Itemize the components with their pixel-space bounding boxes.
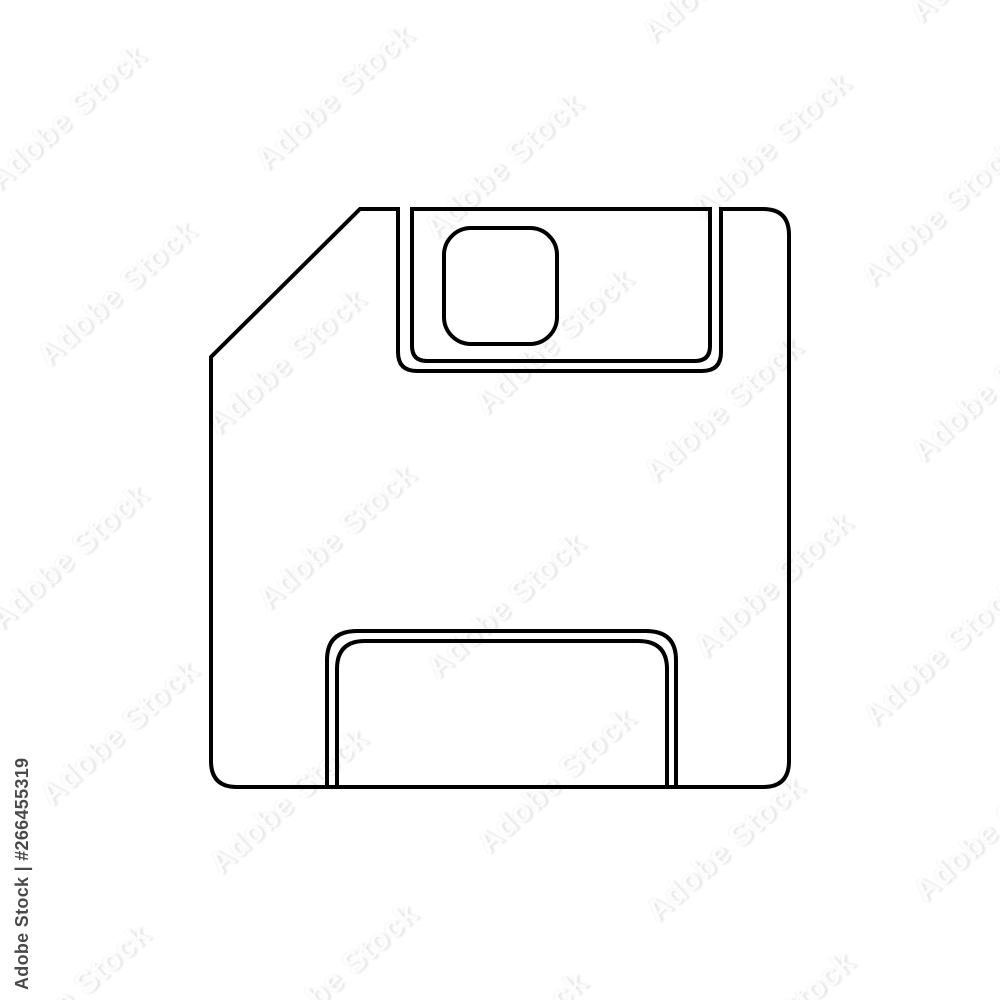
watermark-credit-text: Adobe Stock | #266455319 [12, 758, 32, 990]
watermark-credit: Adobe Stock | #266455319 [12, 758, 33, 990]
disk-body-outline [211, 209, 789, 787]
disk-label-outer-outline [327, 631, 676, 789]
disk-shutter-window [444, 228, 557, 344]
disk-label-inner-outline [337, 641, 667, 789]
stock-image-canvas: Adobe StockAdobe StockAdobe StockAdobe S… [0, 0, 1000, 1000]
floppy-disk-icon [0, 0, 1000, 1000]
